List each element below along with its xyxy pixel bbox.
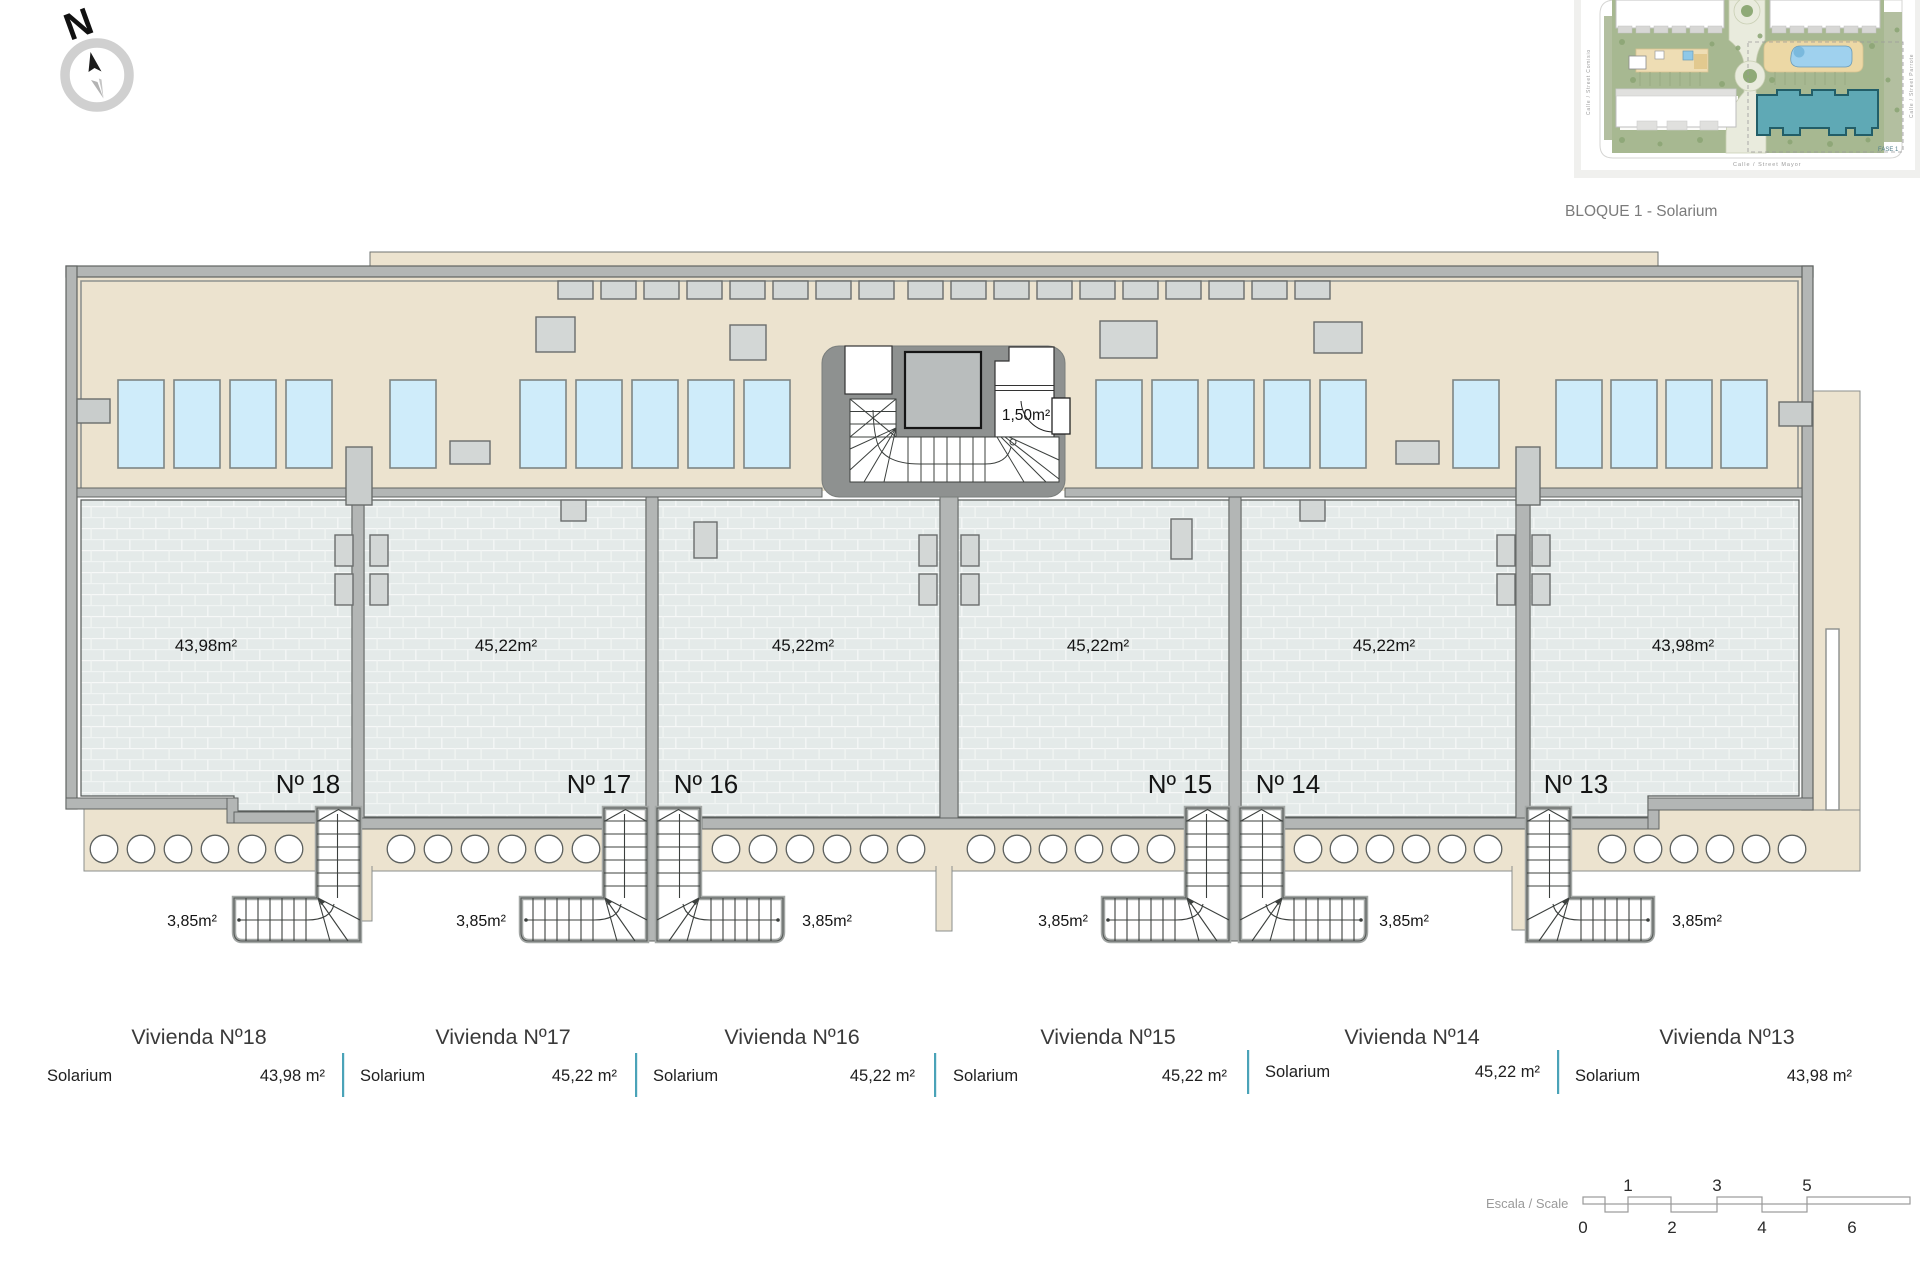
svg-text:FASE 1: FASE 1 <box>1878 147 1899 153</box>
svg-text:Nº 18: Nº 18 <box>276 769 340 799</box>
svg-text:43,98m²: 43,98m² <box>1652 636 1715 655</box>
svg-text:1: 1 <box>1623 1176 1632 1195</box>
svg-text:Nº 15: Nº 15 <box>1148 769 1212 799</box>
svg-text:43,98 m²: 43,98 m² <box>260 1067 326 1085</box>
svg-text:45,22m²: 45,22m² <box>1353 636 1416 655</box>
svg-text:3,85m²: 3,85m² <box>1038 913 1088 930</box>
svg-text:Nº 17: Nº 17 <box>567 769 631 799</box>
svg-text:Nº 14: Nº 14 <box>1256 769 1320 799</box>
svg-text:Nº 13: Nº 13 <box>1544 769 1608 799</box>
svg-text:3: 3 <box>1712 1176 1721 1195</box>
svg-text:4: 4 <box>1757 1218 1766 1237</box>
svg-text:1,50m²: 1,50m² <box>1002 407 1050 424</box>
svg-text:Calle / Street Comisio: Calle / Street Comisio <box>1586 49 1592 115</box>
svg-text:Solarium: Solarium <box>953 1067 1018 1085</box>
svg-text:6: 6 <box>1847 1218 1856 1237</box>
svg-text:Escala / Scale: Escala / Scale <box>1486 1196 1568 1211</box>
svg-text:3,85m²: 3,85m² <box>1379 913 1429 930</box>
svg-text:Calle / Street Mayor: Calle / Street Mayor <box>1733 162 1802 168</box>
svg-text:Solarium: Solarium <box>1265 1063 1330 1081</box>
svg-text:Vivienda Nº16: Vivienda Nº16 <box>724 1025 859 1049</box>
svg-text:Vivienda Nº17: Vivienda Nº17 <box>435 1025 570 1049</box>
svg-text:45,22m²: 45,22m² <box>475 636 538 655</box>
svg-text:3,85m²: 3,85m² <box>456 913 506 930</box>
svg-text:BLOQUE 1 - Solarium: BLOQUE 1 - Solarium <box>1565 203 1717 220</box>
svg-text:Solarium: Solarium <box>360 1067 425 1085</box>
svg-text:Vivienda Nº13: Vivienda Nº13 <box>1659 1025 1794 1049</box>
svg-text:45,22 m²: 45,22 m² <box>1162 1067 1228 1085</box>
svg-text:Solarium: Solarium <box>1575 1067 1640 1085</box>
svg-text:45,22 m²: 45,22 m² <box>552 1067 618 1085</box>
svg-text:Calle / Street Parrote: Calle / Street Parrote <box>1909 54 1915 118</box>
svg-text:0: 0 <box>1578 1218 1587 1237</box>
svg-text:45,22 m²: 45,22 m² <box>850 1067 916 1085</box>
svg-text:Vivienda Nº14: Vivienda Nº14 <box>1344 1025 1479 1049</box>
svg-text:5: 5 <box>1802 1176 1811 1195</box>
svg-text:45,22m²: 45,22m² <box>1067 636 1130 655</box>
svg-text:Vivienda Nº15: Vivienda Nº15 <box>1040 1025 1175 1049</box>
svg-text:43,98m²: 43,98m² <box>175 636 238 655</box>
svg-text:Vivienda Nº18: Vivienda Nº18 <box>131 1025 266 1049</box>
svg-text:Nº 16: Nº 16 <box>674 769 738 799</box>
svg-text:3,85m²: 3,85m² <box>1672 913 1722 930</box>
svg-text:3,85m²: 3,85m² <box>167 913 217 930</box>
svg-text:Solarium: Solarium <box>47 1067 112 1085</box>
svg-text:45,22m²: 45,22m² <box>772 636 835 655</box>
svg-text:45,22 m²: 45,22 m² <box>1475 1063 1541 1081</box>
svg-text:43,98 m²: 43,98 m² <box>1787 1067 1853 1085</box>
svg-text:2: 2 <box>1667 1218 1676 1237</box>
svg-text:Solarium: Solarium <box>653 1067 718 1085</box>
svg-text:3,85m²: 3,85m² <box>802 913 852 930</box>
